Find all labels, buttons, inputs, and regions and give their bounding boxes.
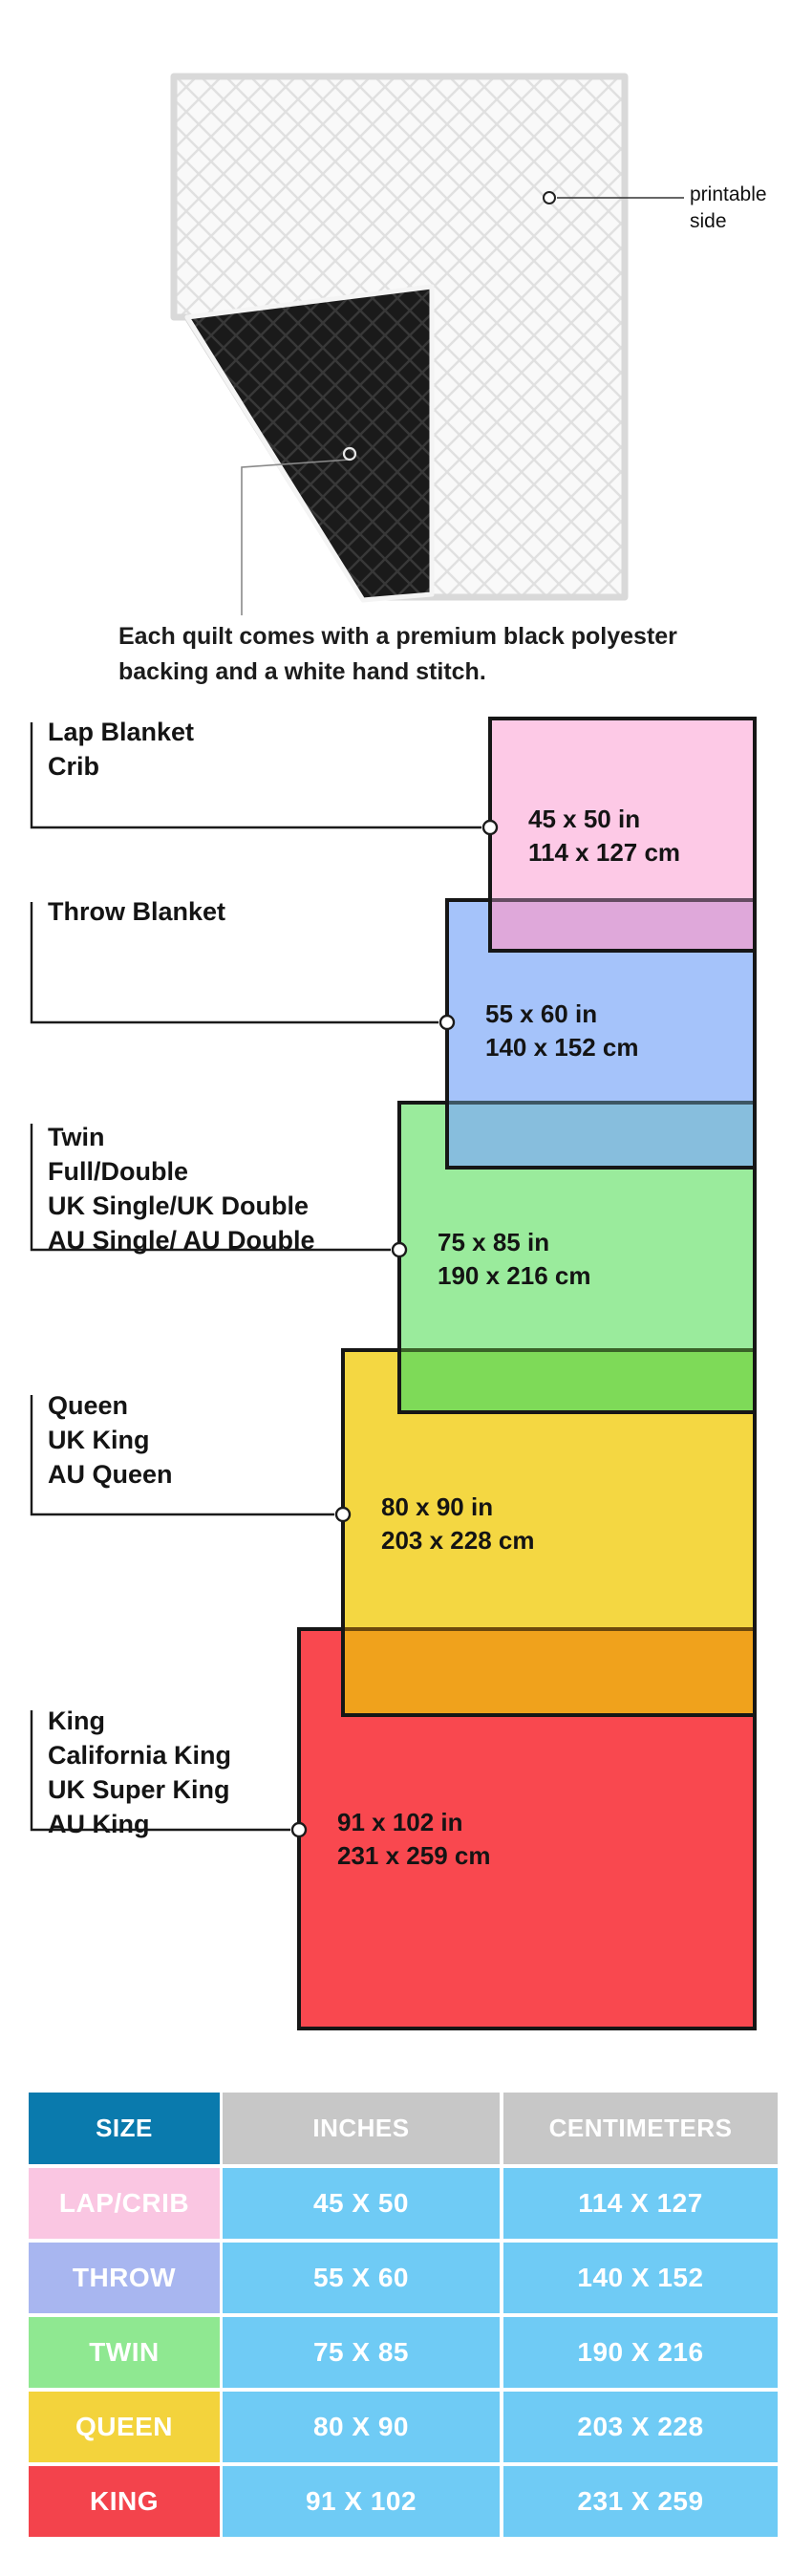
label-line: Lap Blanket [48, 715, 194, 749]
dims-cm: 203 x 228 cm [381, 1524, 534, 1557]
dims-inches: 45 x 50 in [528, 803, 680, 836]
label-line: Twin [48, 1120, 315, 1154]
label-queen: Queen UK King AU Queen [48, 1388, 173, 1492]
label-line: UK Single/UK Double [48, 1189, 315, 1223]
queen-callout-circle [336, 1508, 350, 1521]
label-line: AU Single/ AU Double [48, 1223, 315, 1257]
dims-lap-crib: 45 x 50 in 114 x 127 cm [528, 803, 680, 869]
label-line: King [48, 1704, 231, 1738]
label-line: Full/Double [48, 1154, 315, 1189]
dims-inches: 80 x 90 in [381, 1491, 534, 1524]
throw-callout-circle [440, 1016, 454, 1029]
dims-cm: 140 x 152 cm [485, 1031, 638, 1064]
label-line: AU Queen [48, 1457, 173, 1492]
quilt-size-chart: printable side Each quilt comes with a p… [0, 0, 791, 2576]
label-line: AU King [48, 1807, 231, 1841]
label-line: Crib [48, 749, 194, 784]
label-lap-crib: Lap Blanket Crib [48, 715, 194, 784]
dims-cm: 231 x 259 cm [337, 1839, 490, 1873]
dims-inches: 75 x 85 in [438, 1226, 590, 1259]
dims-inches: 91 x 102 in [337, 1806, 490, 1839]
king-callout-circle [292, 1823, 306, 1836]
dims-twin: 75 x 85 in 190 x 216 cm [438, 1226, 590, 1293]
label-line: Throw Blanket [48, 894, 225, 929]
lap-callout-circle [483, 821, 497, 834]
label-line: UK King [48, 1423, 173, 1457]
label-line: UK Super King [48, 1772, 231, 1807]
label-line: Queen [48, 1388, 173, 1423]
dims-inches: 55 x 60 in [485, 998, 638, 1031]
dims-king: 91 x 102 in 231 x 259 cm [337, 1806, 490, 1873]
dims-queen: 80 x 90 in 203 x 228 cm [381, 1491, 534, 1557]
twin-callout-circle [393, 1243, 406, 1256]
label-line: California King [48, 1738, 231, 1772]
dims-cm: 190 x 216 cm [438, 1259, 590, 1293]
dims-cm: 114 x 127 cm [528, 836, 680, 869]
label-king: King California King UK Super King AU Ki… [48, 1704, 231, 1841]
label-twin: Twin Full/Double UK Single/UK Double AU … [48, 1120, 315, 1257]
label-throw: Throw Blanket [48, 894, 225, 929]
dims-throw: 55 x 60 in 140 x 152 cm [485, 998, 638, 1064]
callout-lines [0, 0, 791, 2576]
